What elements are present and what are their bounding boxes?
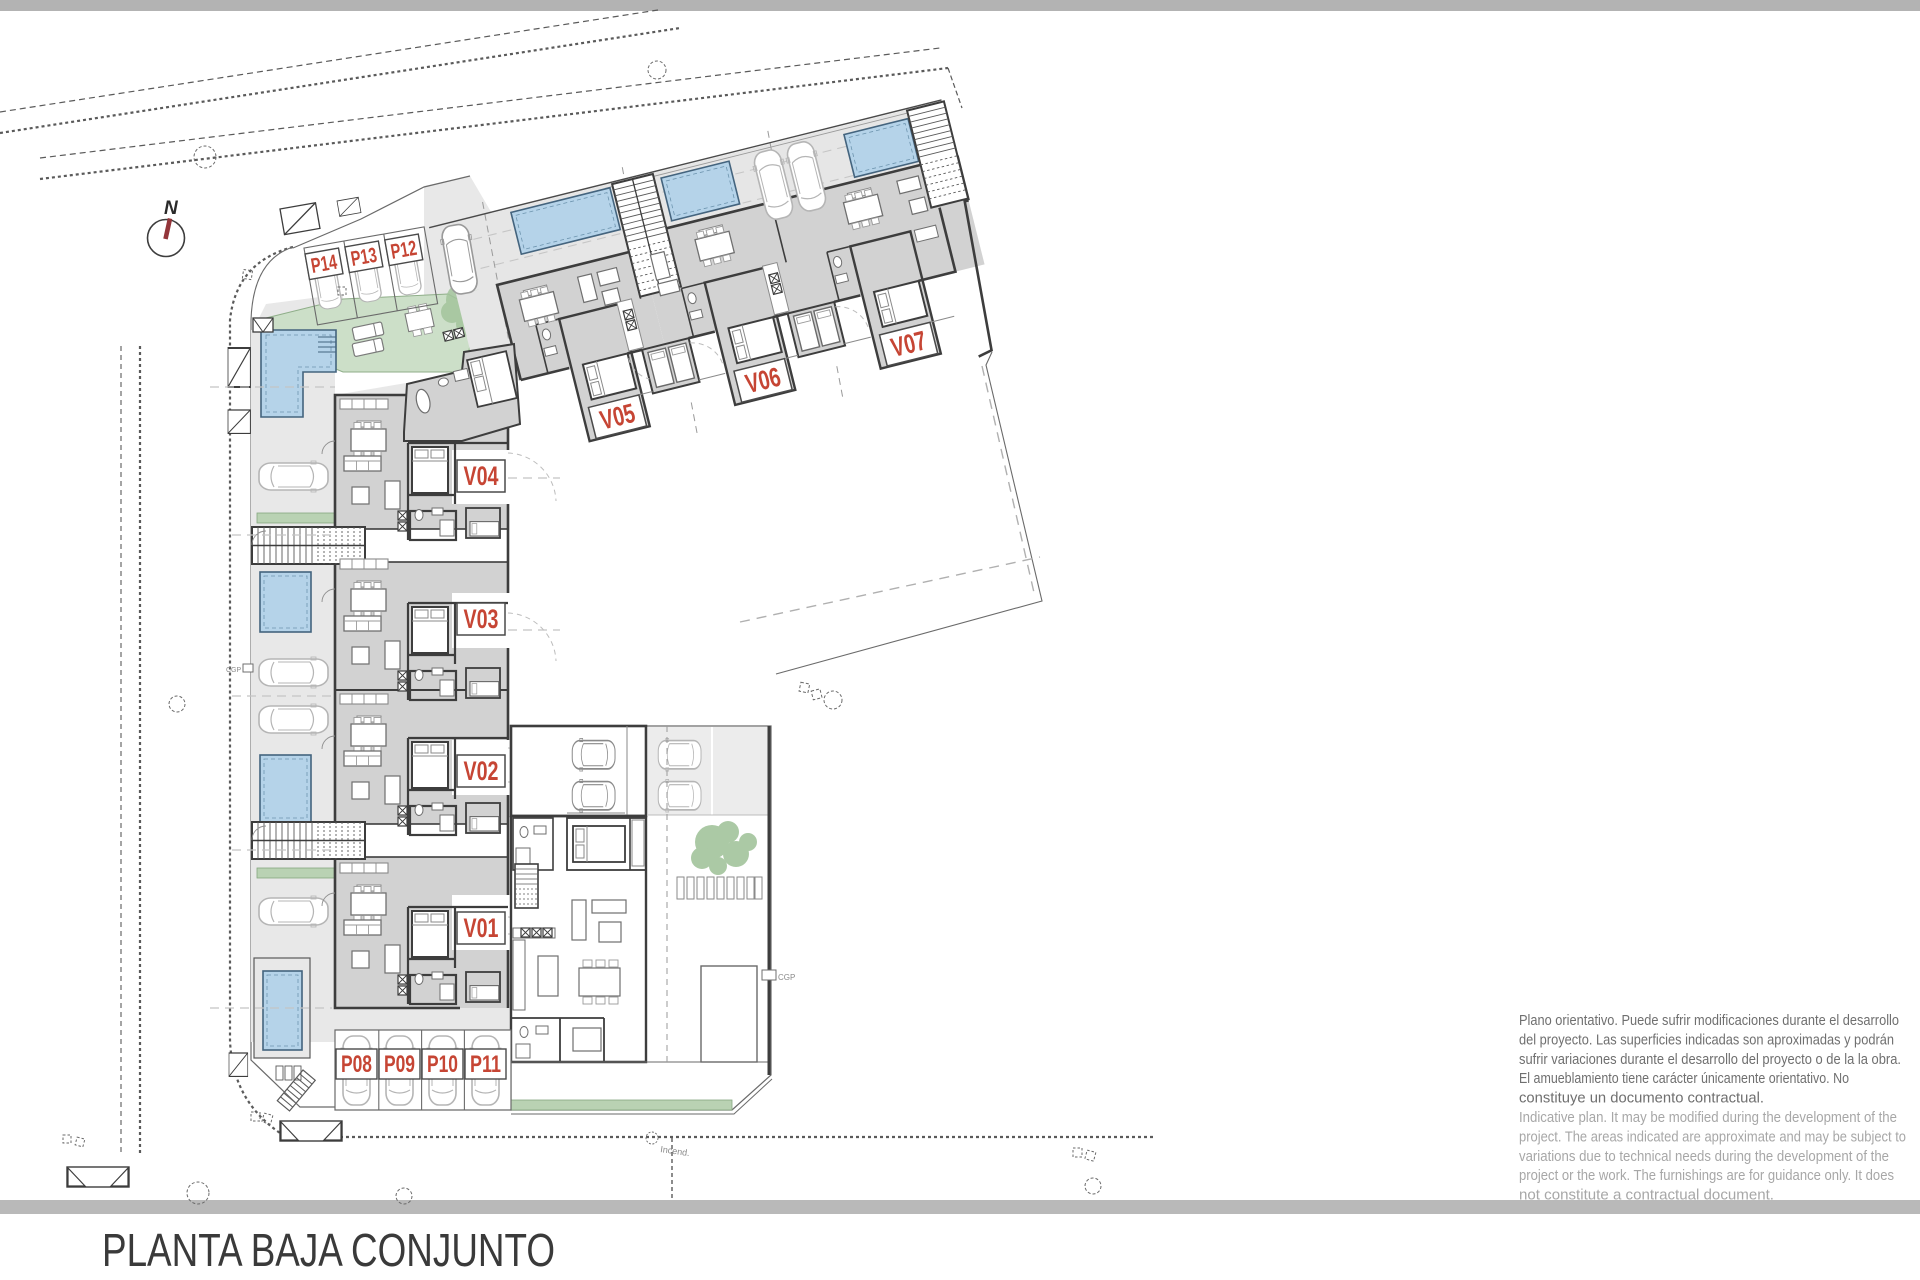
svg-text:P08: P08 xyxy=(341,1051,372,1078)
svg-text:PLANTA BAJA CONJUNTO: PLANTA BAJA CONJUNTO xyxy=(102,1224,555,1276)
svg-text:del proyecto. Las superficies: del proyecto. Las superficies indicadas … xyxy=(1519,1032,1894,1048)
svg-text:P12: P12 xyxy=(389,237,419,264)
svg-text:V02: V02 xyxy=(464,756,499,786)
svg-text:CGP: CGP xyxy=(778,973,795,982)
svg-text:V04: V04 xyxy=(464,461,499,491)
svg-text:Plano orientativo. Puede sufri: Plano orientativo. Puede sufrir modifica… xyxy=(1519,1013,1899,1029)
svg-text:P13: P13 xyxy=(349,244,379,271)
svg-text:variations due to technical ne: variations due to technical needs during… xyxy=(1519,1149,1889,1165)
svg-text:CGP: CGP xyxy=(226,667,242,674)
svg-text:P09: P09 xyxy=(384,1051,415,1078)
svg-text:project or the work. The furni: project or the work. The furnishings are… xyxy=(1519,1168,1894,1184)
svg-text:V01: V01 xyxy=(464,913,499,943)
svg-text:P11: P11 xyxy=(470,1051,501,1078)
svg-text:P14: P14 xyxy=(309,251,339,278)
svg-text:Indicative plan. It may be mod: Indicative plan. It may be modified duri… xyxy=(1519,1110,1897,1126)
svg-text:not constitute a contractual d: not constitute a contractual document. xyxy=(1519,1188,1774,1204)
svg-text:El amueblamiento tiene carácte: El amueblamiento tiene carácter únicamen… xyxy=(1519,1071,1849,1087)
svg-text:project. The areas indicated a: project. The areas indicated are approxi… xyxy=(1519,1129,1906,1145)
svg-text:constituye un documento contra: constituye un documento contractual. xyxy=(1519,1091,1764,1107)
svg-text:V03: V03 xyxy=(464,604,499,634)
svg-text:sufrir variaciones durante el: sufrir variaciones durante el desarrollo… xyxy=(1519,1052,1901,1068)
svg-text:N: N xyxy=(164,198,179,219)
svg-text:P10: P10 xyxy=(427,1051,458,1078)
